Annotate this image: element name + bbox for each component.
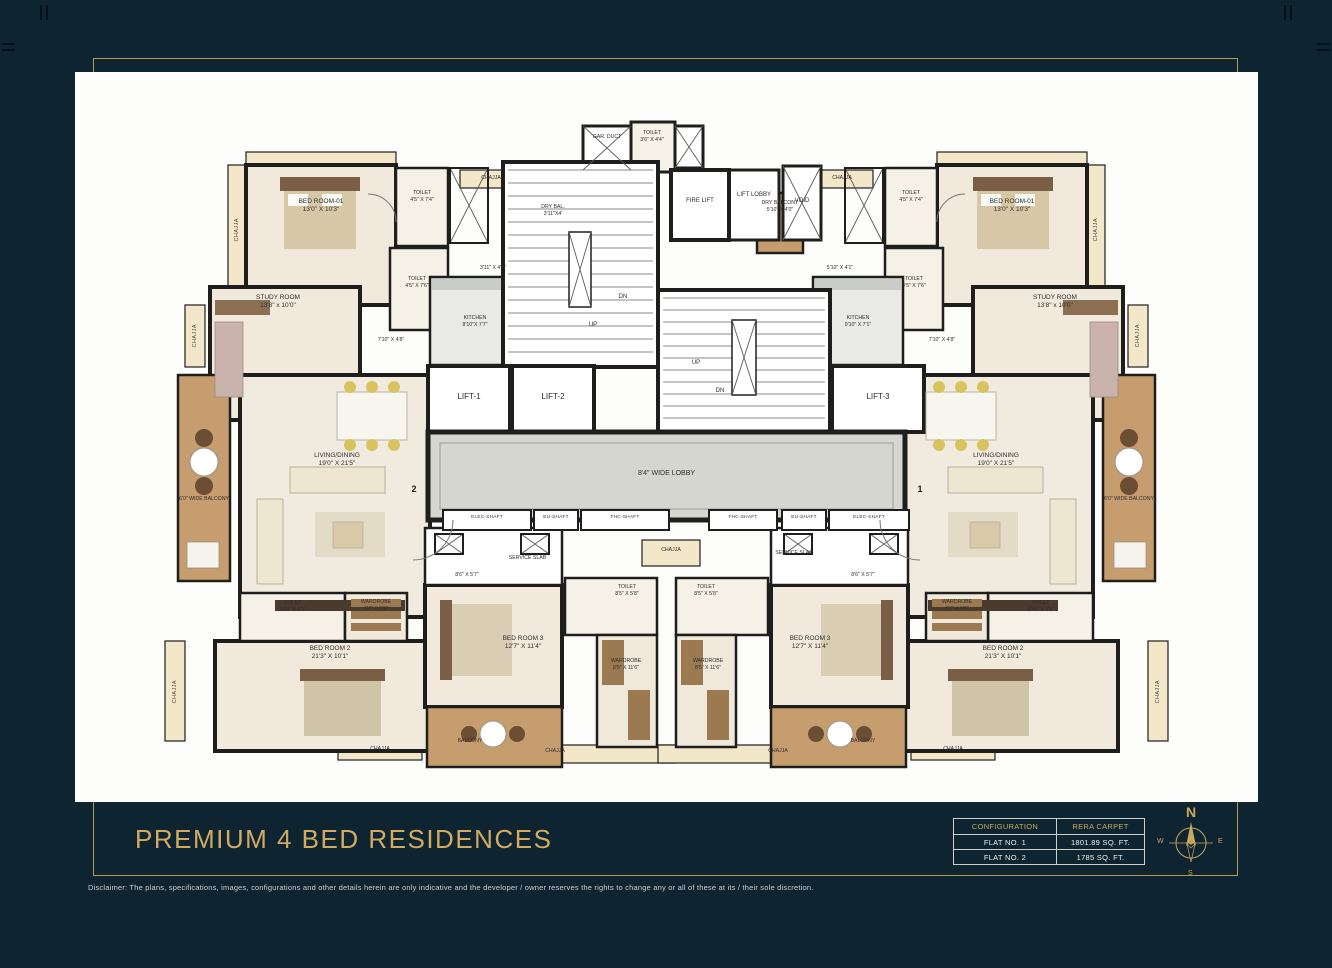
room-label-fire-lift: FIRE LIFT [671, 198, 729, 206]
table-header-configuration: CONFIGURATION [954, 819, 1056, 834]
room-label-wardrobe3-flat2: WARDROBE8'5" X 11'6" [590, 658, 662, 671]
table-header-row: CONFIGURATION RERA CARPET [954, 819, 1144, 834]
room-dims-label: 8'5" X 11'6" [672, 665, 744, 672]
shaft-label-elec: ELEC-SHAFT [443, 515, 531, 521]
room-name-label: BED ROOM 3 [463, 635, 583, 643]
chajja-label: CHAJJA [642, 547, 700, 554]
room-label-toilet-a-flat2: TOILET4'5" X 7'4" [393, 190, 451, 203]
room-dims-label: 3'6" X 4'4" [623, 137, 681, 144]
crop-mark [2, 49, 15, 51]
room-label-toilet2-flat2: TOILET10'6" X 4'1" [245, 600, 340, 613]
shaft-name-label: FHC-SHAFT [729, 515, 758, 520]
room-dims-label: 13'8" x 10'0" [223, 302, 333, 310]
room-dims-label: 10'6" X 4'1" [993, 607, 1088, 614]
flat-number-text: 2 [411, 484, 416, 494]
room-name-label: BED ROOM 2 [943, 645, 1063, 653]
shaft-label-fhc: FHC-SHAFT [709, 515, 777, 521]
room-dims-label: 6'7" X 5'8" [924, 606, 990, 613]
room-dims-label: 4'5" X 7'4" [882, 197, 940, 204]
room-name-label: LIFT-3 [866, 392, 889, 401]
shaft-name-label: EU-SHAFT [791, 515, 817, 520]
room-label-balcony3-flat2: BALCONY [435, 738, 505, 745]
dims-label-passage-flat2: 7'10" X 4'8" [359, 337, 423, 344]
room-label-balcony3-flat1: BALCONY [828, 738, 898, 745]
chajja-label: CHAJJA [228, 187, 246, 272]
chajja-label: CHAJJA [185, 308, 205, 364]
room-name-label: SERVICE SLAB [509, 555, 546, 561]
crop-mark [46, 5, 48, 20]
stair-label-up: UP [683, 360, 709, 368]
stair-direction-label: DN [619, 294, 628, 300]
room-label-wardrobe2-flat2: WARDROBE6'7" X 5'8" [343, 599, 409, 612]
room-name-label: 8'4" WIDE LOBBY [638, 470, 695, 477]
room-name-label: GAR. DUCT [593, 134, 622, 140]
room-name-label: FIRE LIFT [686, 198, 714, 204]
room-label-wardrobe2-flat1: WARDROBE6'7" X 5'8" [924, 599, 990, 612]
room-dims-label: 8'5" X 5'8" [671, 591, 741, 598]
chajja-text: CHAJJA [481, 175, 501, 181]
stair-label-dn: DN [707, 388, 733, 396]
room-dims-label: 6'7" X 5'8" [343, 606, 409, 613]
chajja-text: CHAJJA [943, 746, 963, 752]
room-name-label: LIVING/DINING [946, 452, 1046, 460]
room-label-lift3: LIFT-3 [832, 392, 924, 402]
compass-west-label: W [1157, 838, 1164, 845]
table-cell-flat1: FLAT NO. 1 [954, 835, 1056, 849]
crop-mark [1284, 5, 1286, 20]
room-dims-label: 13'0" X 10'3" [952, 206, 1072, 214]
room-name-label: BALCONY [851, 738, 876, 744]
room-dims-label: 3'11" X 4'1" [480, 265, 506, 271]
room-label-kitchen-flat1: KITCHEN9'10" X 7'1" [810, 315, 906, 328]
room-label-dry-bal-flat2: DRY BAL.3'11"X4' [527, 204, 579, 217]
room-label-living-flat1: LIVING/DINING19'0" X 21'5" [946, 452, 1046, 468]
shaft-label-elec: ELEC-SHAFT [829, 515, 909, 521]
crop-mark [40, 5, 42, 20]
compass-rose: N W E S [1155, 804, 1227, 882]
room-label-kitchen-flat2: KITCHEN8'10"X 7'7" [427, 315, 523, 328]
page-title: PREMIUM 4 BED RESIDENCES [135, 824, 552, 855]
crop-mark [2, 43, 15, 45]
area-table: CONFIGURATION RERA CARPET FLAT NO. 1 180… [953, 818, 1145, 865]
room-name-label: DRY BALCONY [754, 200, 806, 207]
shaft-name-label: EU-SHAFT [543, 515, 569, 520]
room-name-label: SERVICE SLAB [775, 550, 812, 556]
room-label-service-slab-flat1: SERVICE SLAB [769, 550, 819, 557]
room-dims-label: 13'8" x 10'0" [1000, 302, 1110, 310]
room-label-study-flat1: STUDY ROOM13'8" x 10'0" [1000, 294, 1110, 310]
room-dims-label: 7'10" X 4'8" [929, 337, 955, 343]
chajja-label: CHAJJA [165, 652, 185, 732]
flat-number-1: 1 [911, 484, 929, 495]
shaft-name-label: FHC-SHAFT [611, 515, 640, 520]
stair-direction-label: UP [589, 322, 597, 328]
room-label-lobby: 8'4" WIDE LOBBY [428, 470, 905, 479]
room-label-bedroom2-flat2: BED ROOM 221'3" X 10'1" [270, 645, 390, 661]
room-label-lift2: LIFT-2 [512, 392, 594, 402]
room-name-label: 6'0" WIDE BALCONY [1104, 496, 1154, 502]
room-name-label: STUDY ROOM [1000, 294, 1110, 302]
room-dims-label: 8'6" X 5'7" [455, 572, 479, 578]
room-label-toilet-top: TOILET3'6" X 4'4" [623, 130, 681, 143]
chajja-text: CHAJJA [832, 175, 852, 181]
room-dims-label: 5'10" X 4'0" [754, 207, 806, 214]
stair-label-up: UP [580, 322, 606, 330]
chajja-text: CHAJJA [172, 680, 178, 703]
room-name-label: BED ROOM-01 [952, 198, 1072, 206]
chajja-label: CHAJJA [338, 746, 422, 753]
crop-mark [1290, 5, 1292, 20]
table-cell-flat2-area: 1785 SQ. FT. [1056, 850, 1144, 864]
room-label-bedroom3-flat2: BED ROOM 312'7" X 11'4" [463, 635, 583, 651]
shaft-label-fhc: FHC-SHAFT [581, 515, 669, 521]
shaft-label-eu: EU-SHAFT [782, 515, 826, 521]
room-dims-label: 8'5" X 11'6" [590, 665, 662, 672]
room-dims-label: 3'11"X4' [527, 211, 579, 218]
room-dims-label: 4'5" X 7'6" [385, 283, 449, 290]
table-cell-flat1-area: 1801.89 SQ. FT. [1056, 835, 1144, 849]
dims-label-passage-flat1: 7'10" X 4'8" [910, 337, 974, 344]
chajja-label: CHAJJA [460, 175, 522, 182]
room-label-toilet2-flat1: TOILET10'6" X 4'1" [993, 600, 1088, 613]
room-dims-label: 8'6" X 5'7" [851, 572, 875, 578]
room-dims-label: 19'0" X 21'5" [287, 460, 387, 468]
chajja-label: CHAJJA [728, 748, 828, 755]
room-name-label: LIFT LOBBY [737, 192, 771, 198]
room-name-label: BED ROOM 3 [750, 635, 870, 643]
brochure-page: GAR. DUCT TOILET3'6" X 4'4" FIRE LIFT LI… [0, 0, 1332, 968]
room-label-bedroom2-flat1: BED ROOM 221'3" X 10'1" [943, 645, 1063, 661]
table-header-rera-carpet: RERA CARPET [1056, 819, 1144, 834]
room-label-dry-bal-flat1: DRY BALCONY5'10" X 4'0" [754, 200, 806, 213]
room-label-toilet-b-flat1: TOILET4'5" X 7'6" [882, 276, 946, 289]
stair-direction-label: DN [716, 388, 725, 394]
dims-label-dry-bal-outer-flat1: 5'10" X 4'1" [810, 265, 870, 272]
room-dims-label: 21'3" X 10'1" [943, 653, 1063, 661]
room-dims-label: 4'5" X 7'4" [393, 197, 451, 204]
room-label-balcony-flat1: 6'0" WIDE BALCONY [1104, 496, 1154, 503]
chajja-text: CHAJJA [1093, 218, 1099, 241]
room-name-label: LIVING/DINING [287, 452, 387, 460]
room-dims-label: 21'3" X 10'1" [270, 653, 390, 661]
chajja-label: CHAJJA [811, 175, 873, 182]
chajja-text: CHAJJA [545, 748, 565, 754]
room-dims-label: 4'5" X 7'6" [882, 283, 946, 290]
chajja-label: CHAJJA [505, 748, 605, 755]
chajja-label: CHAJJA [1148, 652, 1168, 732]
room-label-lift-lobby: LIFT LOBBY [731, 192, 777, 200]
room-label-toilet-a-flat1: TOILET4'5" X 7'4" [882, 190, 940, 203]
chajja-text: CHAJJA [661, 547, 681, 553]
chajja-text: CHAJJA [370, 746, 390, 752]
compass-east-label: E [1218, 838, 1223, 845]
room-dims-label: 12'7" X 11'4" [463, 643, 583, 651]
table-cell-flat2: FLAT NO. 2 [954, 850, 1056, 864]
chajja-text: CHAJJA [768, 748, 788, 754]
dims-label-dry-bal-outer-flat2: 3'11" X 4'1" [463, 265, 523, 272]
room-name-label: BED ROOM-01 [261, 198, 381, 206]
room-label-toilet3-flat1: TOILET8'5" X 5'8" [671, 584, 741, 597]
chajja-text: CHAJJA [192, 324, 198, 347]
room-dims-label: 8'10"X 7'7" [427, 322, 523, 329]
room-dims-label: 10'6" X 4'1" [245, 607, 340, 614]
room-dims-label: 5'10" X 4'1" [827, 265, 853, 271]
table-row: FLAT NO. 2 1785 SQ. FT. [954, 849, 1144, 864]
room-label-bedroom1-flat1: BED ROOM-0113'0" X 10'3" [952, 198, 1072, 214]
room-label-study-flat2: STUDY ROOM13'8" x 10'0" [223, 294, 333, 310]
room-dims-label: 13'0" X 10'3" [261, 206, 381, 214]
room-label-toilet-b-flat2: TOILET4'5" X 7'6" [385, 276, 449, 289]
room-dims-label: 9'10" X 7'1" [810, 322, 906, 329]
chajja-text: CHAJJA [234, 218, 240, 241]
room-dims-label: 7'10" X 4'8" [378, 337, 404, 343]
stair-direction-label: UP [692, 360, 700, 366]
flat-number-2: 2 [405, 484, 423, 495]
room-name-label: LIFT-1 [457, 392, 480, 401]
room-label-wardrobe3-flat1: WARDROBE8'5" X 11'6" [672, 658, 744, 671]
room-label-toilet3-flat2: TOILET8'5" X 5'8" [592, 584, 662, 597]
room-label-bedroom3-flat1: BED ROOM 312'7" X 11'4" [750, 635, 870, 651]
floorplan-drawing [75, 72, 1258, 802]
chajja-text: CHAJJA [1135, 324, 1141, 347]
room-name-label: 6'0" WIDE BALCONY [179, 496, 229, 502]
room-label-bedroom1-flat2: BED ROOM-0113'0" X 10'3" [261, 198, 381, 214]
chajja-label: CHAJJA [911, 746, 995, 753]
room-label-gar-duct: GAR. DUCT [589, 134, 625, 141]
disclaimer-text: Disclaimer: The plans, specifications, i… [88, 883, 814, 892]
room-dims-label: 19'0" X 21'5" [946, 460, 1046, 468]
room-label-lift1: LIFT-1 [428, 392, 510, 402]
chajja-label: CHAJJA [1128, 308, 1148, 364]
compass-south-label: S [1188, 870, 1193, 877]
crop-mark [1317, 49, 1330, 51]
shaft-name-label: ELEC-SHAFT [853, 515, 885, 520]
room-name-label: LIFT-2 [541, 392, 564, 401]
chajja-label: CHAJJA [1087, 187, 1105, 272]
room-label-living-flat2: LIVING/DINING19'0" X 21'5" [287, 452, 387, 468]
room-dims-label: 8'5" X 5'8" [592, 591, 662, 598]
room-dims-label: 12'7" X 11'4" [750, 643, 870, 651]
table-row: FLAT NO. 1 1801.89 SQ. FT. [954, 834, 1144, 849]
chajja-text: CHAJJA [1155, 680, 1161, 703]
floorplan-sheet: GAR. DUCT TOILET3'6" X 4'4" FIRE LIFT LI… [75, 72, 1258, 802]
room-name-label: BALCONY [458, 738, 483, 744]
dims-label-service-flat1: 8'6" X 5'7" [833, 572, 893, 579]
room-name-label: STUDY ROOM [223, 294, 333, 302]
crop-mark [1317, 43, 1330, 45]
compass-north-label: N [1186, 804, 1196, 820]
dims-label-service-flat2: 8'6" X 5'7" [437, 572, 497, 579]
shaft-name-label: ELEC-SHAFT [471, 515, 503, 520]
shaft-label-eu: EU-SHAFT [534, 515, 578, 521]
room-name-label: BED ROOM 2 [270, 645, 390, 653]
room-label-service-slab-flat2: SERVICE SLAB [490, 555, 565, 562]
room-label-balcony-flat2: 6'0" WIDE BALCONY [179, 496, 229, 503]
stair-label-dn: DN [610, 294, 636, 302]
flat-number-text: 1 [917, 484, 922, 494]
